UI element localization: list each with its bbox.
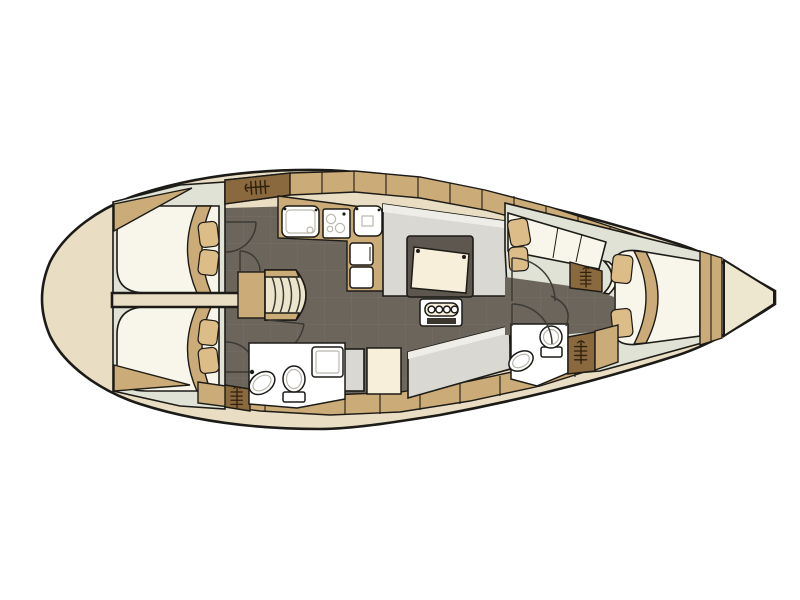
tap bbox=[250, 370, 254, 374]
stove bbox=[323, 209, 350, 238]
boat-floor-plan bbox=[0, 0, 800, 600]
pillow bbox=[197, 249, 219, 276]
bottle-rack bbox=[420, 299, 462, 326]
galley-sink bbox=[282, 206, 319, 237]
step-cap bbox=[265, 313, 299, 320]
pillow bbox=[197, 319, 219, 346]
pillow bbox=[198, 347, 220, 374]
chart-table bbox=[367, 348, 401, 394]
toilet bbox=[283, 366, 305, 402]
pillow bbox=[611, 254, 634, 284]
vanity-locker bbox=[595, 325, 618, 370]
centerline-bulkhead bbox=[112, 293, 240, 307]
toilet bbox=[540, 326, 562, 357]
aft-cabin-port bbox=[113, 182, 225, 293]
salon-table bbox=[411, 247, 469, 293]
aft-head bbox=[245, 343, 345, 408]
engine-box bbox=[238, 272, 265, 318]
nav-seat bbox=[343, 349, 364, 391]
step-cap bbox=[265, 270, 299, 277]
shower bbox=[312, 347, 343, 377]
bow bbox=[700, 251, 774, 345]
galley-second-sink bbox=[354, 206, 382, 236]
anchor-locker bbox=[724, 260, 774, 336]
pillow bbox=[198, 221, 220, 248]
fridge bbox=[350, 243, 373, 288]
cushion bbox=[507, 217, 531, 247]
